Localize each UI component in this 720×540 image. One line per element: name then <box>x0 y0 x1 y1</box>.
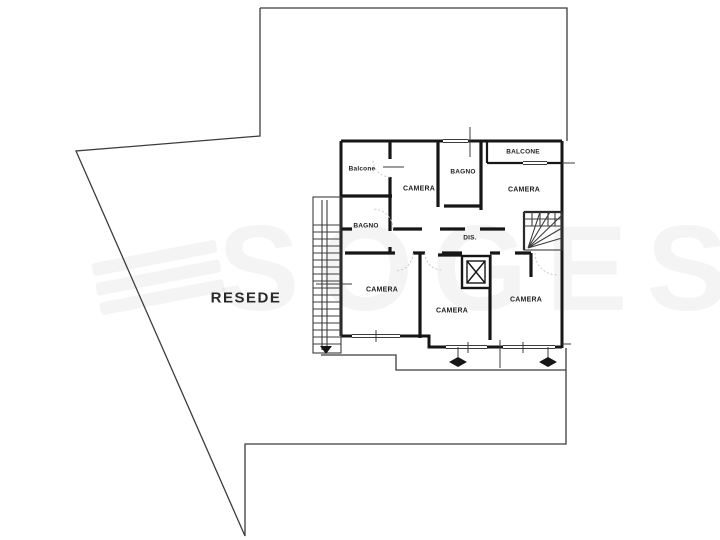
room-label-bagno-left: BAGNO <box>353 223 378 230</box>
room-label-camera-bottom-left: CAMERA <box>366 287 398 294</box>
room-label-camera-top-right: CAMERA <box>508 187 540 194</box>
winder-staircase <box>524 212 562 250</box>
room-label-disimpegno: DIS. <box>463 235 476 242</box>
room-label-balcone-top-right: BALCONE <box>506 149 540 156</box>
floorplan-scan: SOGES <box>0 0 720 540</box>
area-label-resede: RESEDE <box>211 290 282 307</box>
room-label-camera-bottom-right: CAMERA <box>510 297 542 304</box>
floorplan-drawing <box>0 0 720 540</box>
room-label-bagno-top: BAGNO <box>450 169 475 176</box>
elevator <box>462 256 490 288</box>
room-label-camera-bottom-center: CAMERA <box>436 308 468 315</box>
external-staircase <box>313 197 352 354</box>
room-label-camera-top-left: CAMERA <box>403 186 435 193</box>
room-label-balcone-top-left: Balcone <box>349 166 376 173</box>
